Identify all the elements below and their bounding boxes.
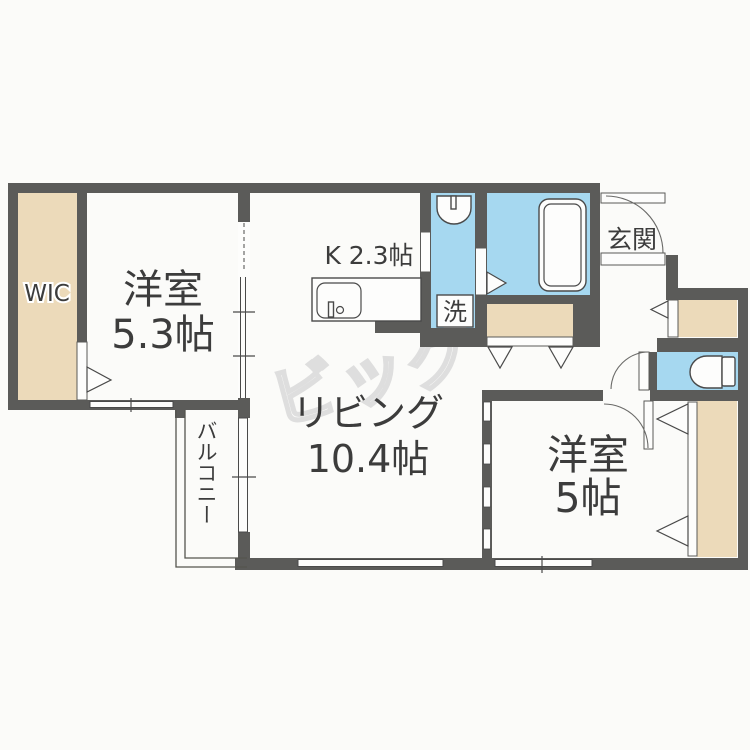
hall-closet-door-band (487, 337, 573, 346)
wall-slot (484, 487, 491, 507)
bath-door-leaf (476, 248, 487, 295)
wall (738, 288, 748, 570)
wall-slot (484, 402, 491, 421)
balcony-sliding-window (239, 418, 248, 532)
bedroom2-size: 5帖 (554, 474, 621, 522)
bedroom2-window (495, 560, 592, 567)
kitchen-label: K 2.3帖 (324, 241, 413, 270)
floorplan-canvas: ビッグ (0, 0, 750, 750)
entry-closet-door-leaf (668, 300, 678, 337)
wall (482, 390, 603, 401)
wall (238, 193, 250, 222)
wall (475, 295, 487, 347)
entry-closet-floor (678, 300, 737, 337)
wall (657, 338, 748, 352)
door-pocket (238, 222, 250, 398)
bedroom2-closet-door-leaf (688, 402, 697, 556)
toilet-tank (722, 357, 735, 386)
front-door-leaf (601, 193, 665, 203)
bedroom1-size: 5.3帖 (111, 312, 215, 358)
wall (8, 183, 18, 410)
wall-slot (484, 529, 491, 549)
wall (375, 321, 420, 333)
wall (420, 193, 431, 232)
hall-closet-fold-triangle (549, 347, 573, 368)
toilet-bowl-icon (690, 356, 722, 388)
living-name: リビング (292, 391, 444, 435)
wic-door-triangle (87, 367, 111, 392)
bedroom1-name: 洋室 (123, 267, 203, 313)
kitchen-faucet (329, 302, 334, 317)
wall (8, 183, 600, 193)
toilet-door-leaf (639, 352, 649, 390)
entrance-label: 玄関 (607, 225, 657, 254)
bedroom2-closet-fold-triangle (657, 404, 688, 434)
living-window (298, 560, 443, 567)
wall (238, 398, 250, 418)
hall-closet-floor (487, 304, 573, 337)
entry-closet-door-triangle (651, 301, 668, 318)
washbasin-faucet (451, 196, 456, 209)
entrance-step (601, 253, 665, 265)
wic-label: WIC (24, 281, 70, 307)
wic-door-leaf (77, 342, 87, 400)
bedroom1-sliding-door (233, 222, 255, 398)
bedroom2-closet-floor (697, 400, 737, 557)
wall-slot (484, 444, 491, 464)
balcony-label: バルコニー (194, 420, 218, 525)
bedroom2-name: 洋室 (547, 431, 629, 479)
bathtub-icon (539, 199, 586, 291)
laundry-label: 洗 (443, 298, 467, 326)
wall (666, 288, 748, 300)
hall-closet-fold-triangle (488, 347, 512, 368)
wall (650, 390, 748, 401)
washroom-door-leaf (421, 232, 431, 272)
wall (590, 193, 600, 345)
bedroom2-door-leaf (644, 401, 653, 449)
wall (475, 193, 487, 248)
wall (77, 193, 87, 342)
bedroom2-closet-fold-triangle (657, 516, 688, 546)
living-size: 10.4帖 (307, 437, 430, 481)
